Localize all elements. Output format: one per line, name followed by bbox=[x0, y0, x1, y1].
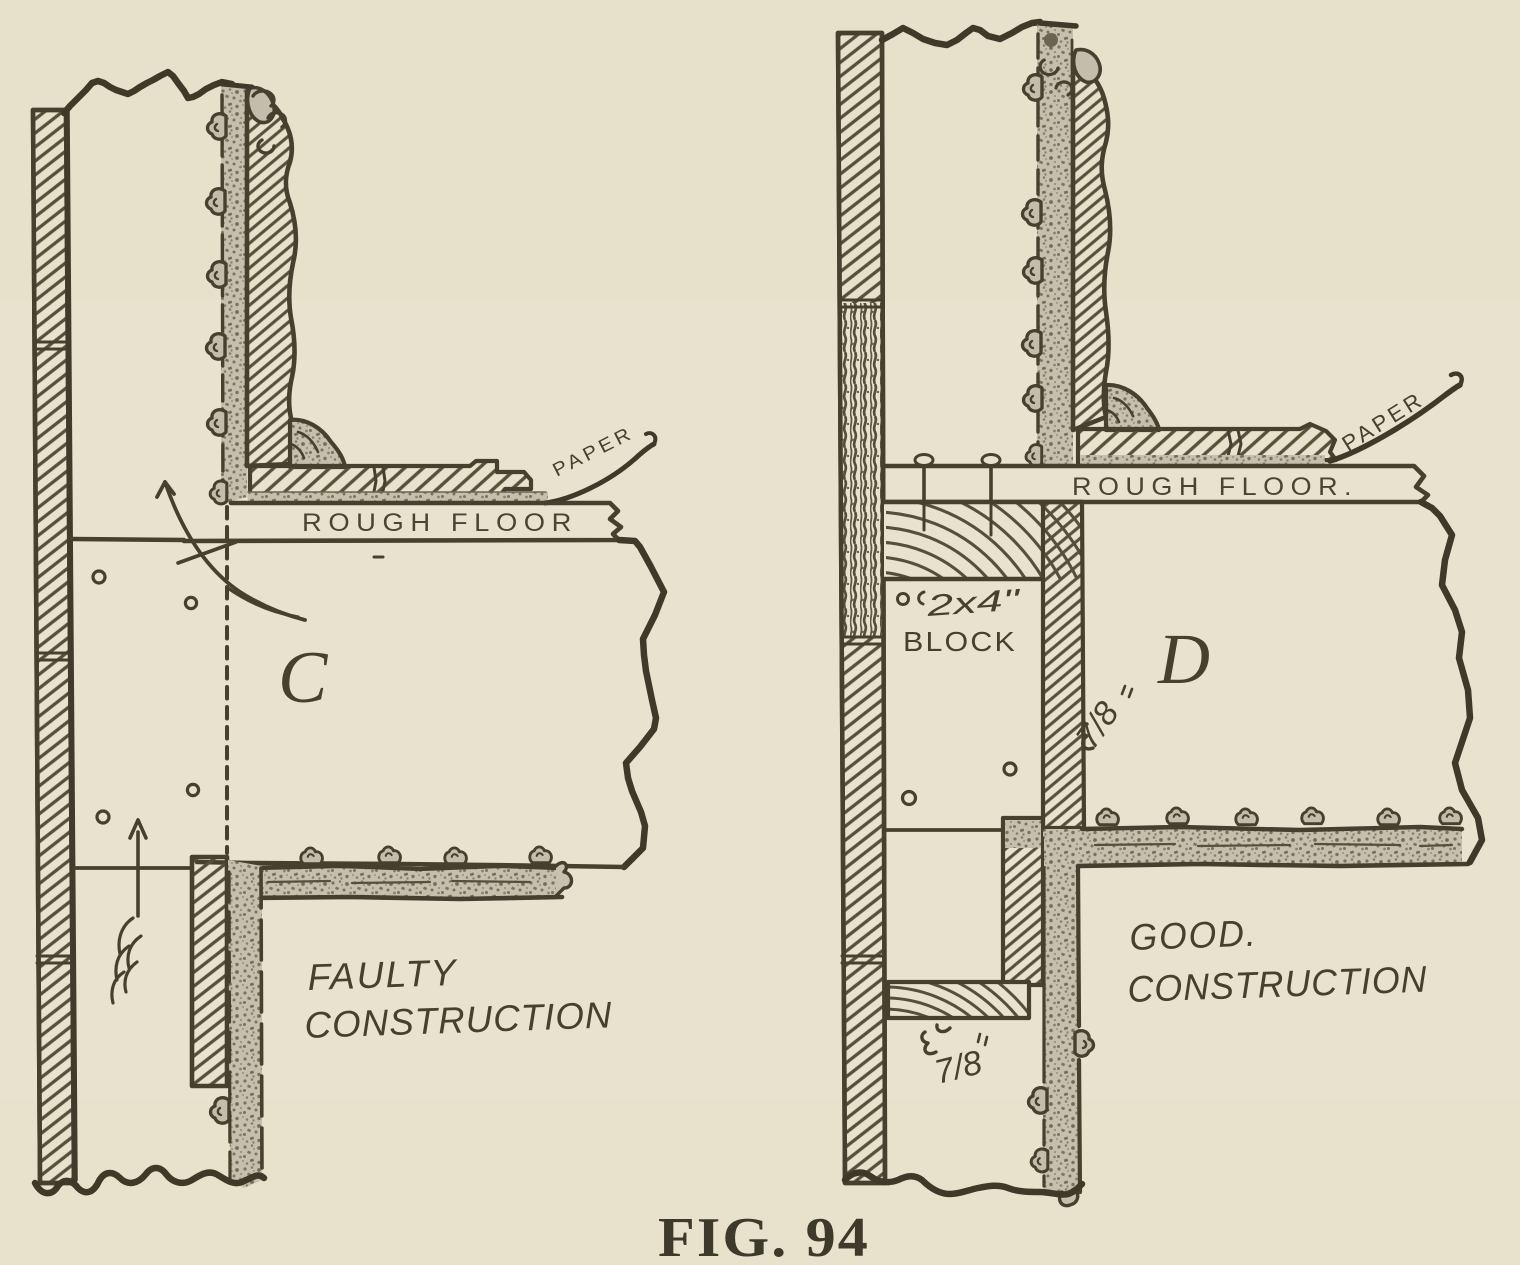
svg-text:FAULTY: FAULTY bbox=[307, 952, 459, 998]
svg-text:ROUGH FLOOR.: ROUGH FLOOR. bbox=[1072, 473, 1358, 501]
svg-text:FIG. 94: FIG. 94 bbox=[658, 1207, 870, 1265]
svg-text:D: D bbox=[1157, 619, 1210, 699]
svg-text:C: C bbox=[278, 637, 329, 719]
svg-text:GOOD.: GOOD. bbox=[1129, 913, 1258, 958]
svg-text:2x4": 2x4" bbox=[925, 584, 1023, 624]
svg-text:BLOCK: BLOCK bbox=[903, 626, 1017, 657]
svg-text:ROUGH FLOOR: ROUGH FLOOR bbox=[302, 509, 578, 537]
